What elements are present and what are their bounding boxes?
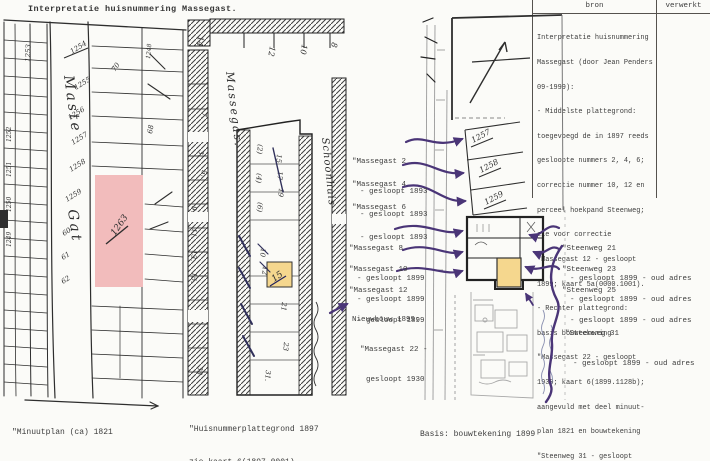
- svg-text:62: 62: [60, 274, 72, 286]
- svg-text:31.: 31.: [263, 370, 272, 382]
- caption-huisnummerplattegrond: "Huisnummerplattegrond 1897 zie kaart 6(…: [189, 402, 319, 461]
- svg-text:(6): (6): [255, 202, 264, 213]
- street-name-massegas: Massegas.: [223, 70, 245, 148]
- svg-text:19: 19: [276, 188, 285, 198]
- annotation-name: Nieuwbouw 1899:: [352, 315, 428, 325]
- svg-text:5.: 5.: [199, 170, 208, 177]
- svg-text:13.: 13.: [189, 250, 198, 262]
- svg-text:1258: 1258: [68, 157, 88, 174]
- svg-text:1259: 1259: [64, 187, 84, 204]
- caption-line: "Huisnummerplattegrond 1897: [189, 424, 319, 435]
- svg-text:1249: 1249: [6, 232, 13, 247]
- faint-cursive-notes: [542, 310, 553, 394]
- svg-text:14: 14: [195, 36, 205, 47]
- svg-text:1248: 1248: [145, 43, 153, 59]
- svg-text:1254: 1254: [69, 39, 88, 55]
- svg-text:15.: 15.: [189, 272, 198, 284]
- map-minuutplan-1821: 1263 Maste Gat 1253 1254 1255 1256 1257 …: [0, 14, 190, 406]
- svg-text:1252: 1252: [6, 127, 13, 142]
- annotation-name: "Steenweg 31: [565, 329, 695, 339]
- svg-text:1253: 1253: [24, 43, 33, 62]
- annotation-nieuwbouw: Nieuwbouw 1899: "Massegast 22 - gesloopt…: [352, 295, 428, 405]
- svg-text:3.: 3.: [196, 150, 205, 157]
- svg-text:1250: 1250: [6, 197, 13, 212]
- svg-text:(2): (2): [255, 144, 264, 155]
- caption-line: "Minuutplan (ca) 1821: [12, 427, 122, 438]
- column-header-bron: bron: [533, 2, 656, 10]
- annotation-name: "Steenweg 25: [562, 286, 692, 296]
- svg-text:70: 70: [110, 61, 122, 73]
- svg-text:68: 68: [146, 124, 156, 135]
- house-numbers: 14 12 10 8 7. 3. 5. 9. 11. 13. 15. 33 (2…: [189, 36, 339, 382]
- pencil-sketch: [471, 292, 533, 398]
- map-bouwtekening-1899: 1257 1258 1259: [415, 10, 580, 408]
- svg-text:21: 21: [279, 301, 288, 312]
- svg-text:1258: 1258: [478, 157, 500, 175]
- annotation-detail: "Massegast 22 -: [352, 345, 428, 355]
- caption-line: Basis: bouwtekening 1899: [420, 429, 535, 440]
- svg-text:12: 12: [266, 46, 277, 58]
- svg-text:11.: 11.: [189, 228, 198, 240]
- svg-text:7.: 7.: [199, 112, 208, 119]
- caption-minuutplan: "Minuutplan (ca) 1821 zie kaart 6(1821.0…: [12, 405, 122, 461]
- caption-bouwtekening: Basis: bouwtekening 1899 zie bronkolom.: [420, 407, 535, 461]
- door-gap: [332, 214, 346, 224]
- svg-text:(4): (4): [254, 173, 263, 184]
- svg-text:8: 8: [329, 42, 339, 49]
- door-gap: [188, 310, 208, 322]
- svg-text:10: 10: [298, 44, 309, 56]
- bron-line: "Steenweg 31 - gesloopt: [537, 453, 657, 461]
- north-arrow: [470, 42, 505, 103]
- annotation-name: "Massegast 6: [352, 203, 428, 213]
- highlight-house-steenweg25: [497, 258, 521, 287]
- annotation-detail: gesloopt 1930: [352, 375, 428, 385]
- cursive-street-script: [314, 302, 318, 386]
- svg-text:33: 33: [195, 366, 204, 376]
- caption-line: zie kaart 6(1897.0001): [189, 457, 319, 461]
- bron-line: plan 1821 en bouwtekening: [537, 428, 657, 436]
- page-title: Interpretatie huisnummering Massegast.: [28, 4, 237, 14]
- svg-text:1257: 1257: [470, 127, 493, 145]
- scanned-document-sheet: Interpretatie huisnummering Massegast. b…: [0, 0, 710, 461]
- svg-text:1259: 1259: [483, 189, 505, 207]
- map-huisnummerplattegrond-1897: 15 Massegas. Schoonhuis 14 12 10 8 7. 3.…: [186, 14, 348, 406]
- svg-text:61: 61: [60, 250, 72, 262]
- svg-text:23: 23: [281, 341, 290, 352]
- door-gap: [188, 212, 208, 222]
- svg-text:1251: 1251: [6, 162, 13, 177]
- annotation-steenweg-31: "Steenweg 31 - gesloopt 1899 - oud adres: [565, 309, 695, 389]
- overlay-parcel-numbers: 1257 1258 1259: [470, 127, 505, 207]
- column-header-verwerkt: verwerkt: [657, 2, 710, 10]
- annotation-detail: - gesloopt 1899 - oud adres: [565, 359, 695, 369]
- door-gap: [188, 132, 208, 142]
- svg-text:9.: 9.: [189, 206, 198, 213]
